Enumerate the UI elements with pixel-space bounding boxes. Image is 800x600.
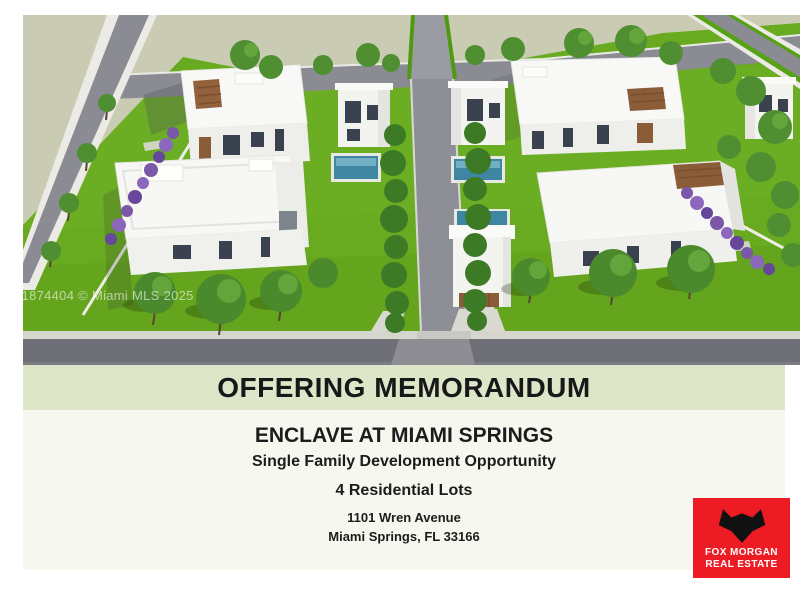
offering-banner: OFFERING MEMORANDUM: [23, 365, 785, 410]
house-bottom-left: [115, 155, 309, 275]
property-rendering: [23, 15, 800, 365]
fox-head-icon: [714, 507, 770, 545]
property-name: ENCLAVE AT MIAMI SPRINGS: [23, 424, 785, 448]
lot-count: 4 Residential Lots: [23, 482, 785, 500]
house-top-left: [181, 65, 310, 167]
address-line-1: 1101 Wren Avenue: [23, 510, 785, 525]
offering-type: Single Family Development Opportunity: [23, 453, 785, 471]
logo-name-line1: FOX MORGAN: [705, 547, 778, 559]
logo-name-line2: REAL ESTATE: [705, 559, 778, 571]
address-line-2: Miami Springs, FL 33166: [23, 529, 785, 544]
brokerage-logo: FOX MORGAN REAL ESTATE: [693, 498, 790, 578]
rendering-illustration: [23, 15, 800, 365]
banner-title: OFFERING MEMORANDUM: [217, 372, 590, 404]
offering-memorandum-page: A11874404 © Miami MLS 2025 OFFERING MEMO…: [0, 0, 800, 600]
house-top-right: [511, 57, 686, 155]
mls-watermark: A11874404 © Miami MLS 2025: [6, 288, 194, 303]
